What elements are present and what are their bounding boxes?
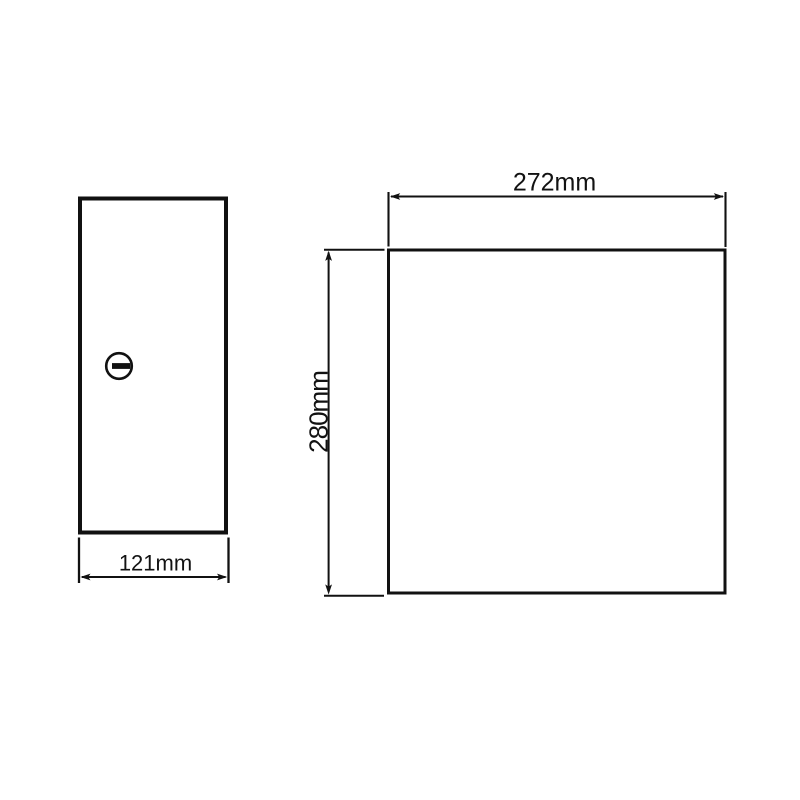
svg-text:121mm: 121mm <box>119 551 192 576</box>
svg-text:280mm: 280mm <box>304 371 334 453</box>
svg-text:272mm: 272mm <box>513 169 596 197</box>
